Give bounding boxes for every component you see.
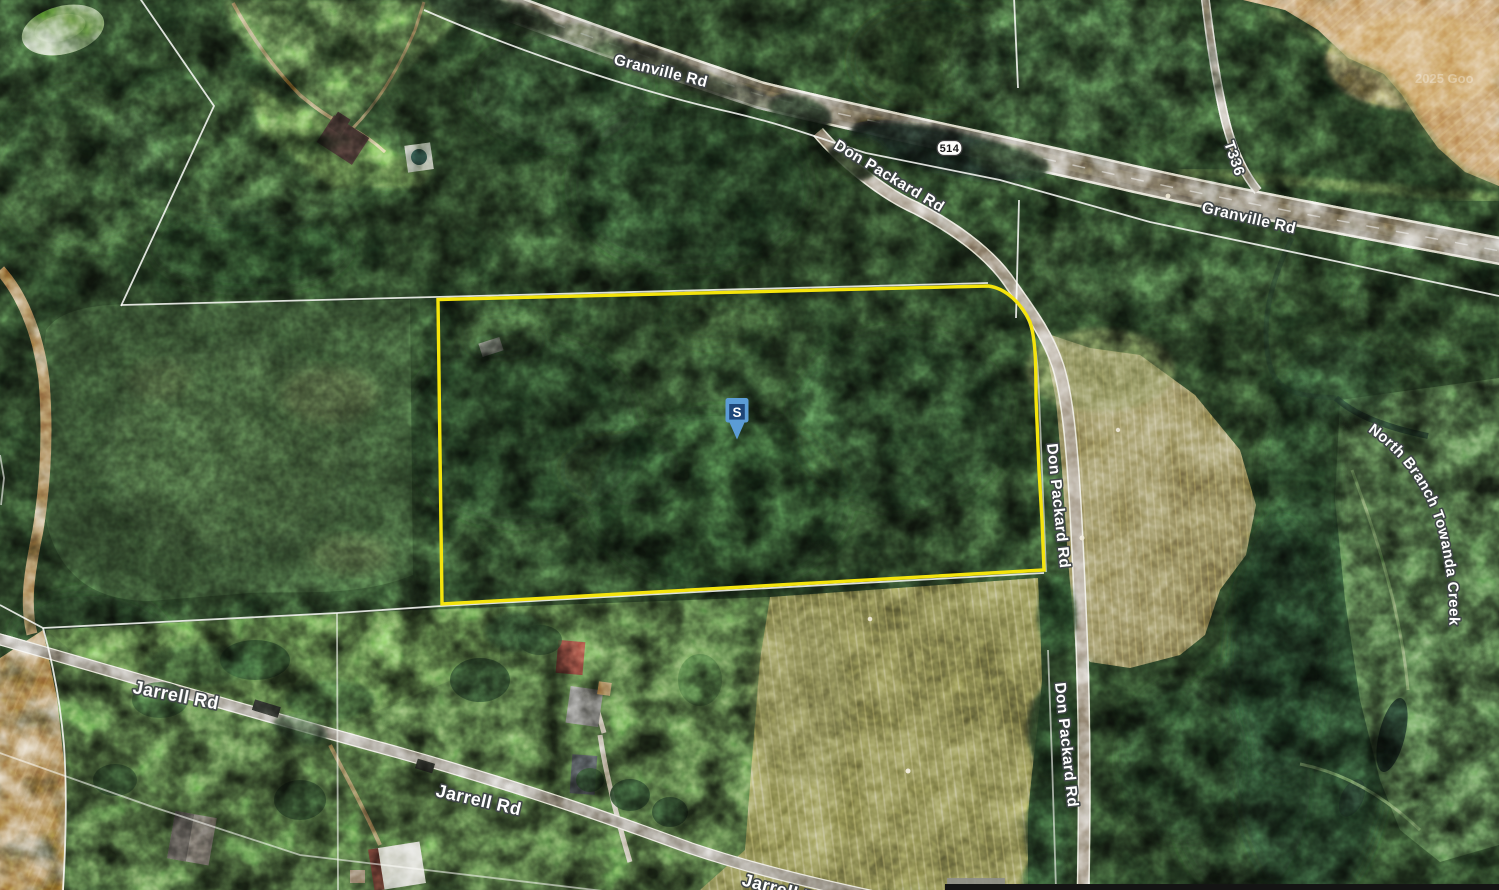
svg-text:S: S xyxy=(732,405,741,420)
svg-text:2025 Goo: 2025 Goo xyxy=(1415,71,1474,86)
svg-text:514: 514 xyxy=(940,143,960,155)
